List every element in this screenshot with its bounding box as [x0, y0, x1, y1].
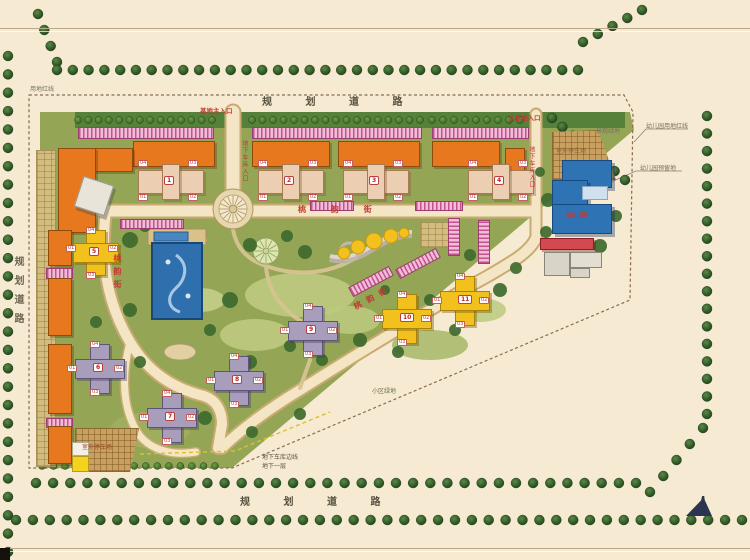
- swimming-pool: [148, 229, 206, 319]
- parking-row: [432, 127, 529, 139]
- garage-entrance-main-label: 地下车库入口: [240, 140, 249, 182]
- parking-row: [78, 127, 214, 139]
- garage-entrance-secondary-label: 地下车库入口: [527, 146, 536, 188]
- tower-building: 0401 0203 8: [214, 356, 262, 404]
- tower-building: 0401 0203 5: [73, 230, 117, 274]
- street-name-main: 桃 韵 街: [298, 204, 383, 215]
- red-slab-building: [540, 238, 594, 250]
- kindergarten-redline-label: 幼儿园用地红线: [646, 121, 688, 130]
- kindergarten-reserved-label: 幼儿园预留地: [640, 163, 676, 172]
- kindergarten-building: 幼儿园: [552, 158, 616, 236]
- gray-block-building: [570, 252, 602, 268]
- bottom-road-label: 规 划 道 路: [240, 493, 395, 508]
- outdoor-parking-sw-label: 室外停车场: [82, 442, 112, 451]
- utility-building: [72, 456, 89, 472]
- left-road-label: 规划道路: [10, 256, 25, 332]
- housing-cluster: 0403 0102 3: [343, 162, 407, 204]
- site-redline-label: 用地红线: [30, 84, 54, 93]
- main-entrance-label: 基地主入口: [200, 105, 233, 115]
- housing-cluster: 0403 0102 4: [468, 162, 532, 204]
- tower-building: 0401 0203 6: [75, 344, 123, 392]
- west-slab: [48, 426, 72, 464]
- kindergarten-label: 幼儿园: [566, 210, 587, 220]
- bottom-frame-line: [0, 548, 750, 552]
- tower-building: 0401 0203 10: [382, 294, 430, 342]
- tower-building: 0401 0203 11: [440, 276, 488, 324]
- community-green-label: 小区绿地: [372, 386, 396, 395]
- gray-block-building: [544, 252, 570, 276]
- west-slab: [48, 278, 72, 336]
- parking-row: [478, 220, 490, 264]
- top-road-label: 规 划 道 路: [262, 93, 417, 108]
- black-corner-mark: [0, 548, 10, 560]
- landscape-green-label: 景观绿地: [596, 126, 620, 135]
- housing-cluster: 0403 0102 1: [138, 162, 202, 204]
- parking-row: [120, 219, 184, 229]
- garage-edge-label: 地下车库边线 地下一层: [262, 453, 298, 471]
- parking-row: [448, 218, 460, 256]
- tower-building: 0401 0203 7: [147, 393, 195, 441]
- housing-cluster: 0403 0102 2: [258, 162, 322, 204]
- garden-rosette: [253, 238, 279, 264]
- gray-block-building: [570, 268, 590, 278]
- site-plan-map: 幼儿园 0403 0102 1 0403 0102 2 0403 0102 3 …: [0, 0, 750, 560]
- secondary-entrance-label: 次基地入口: [508, 112, 541, 122]
- roundabout-plaza: [213, 189, 253, 229]
- top-frame-line: [0, 28, 750, 32]
- parking-row: [415, 201, 463, 211]
- parking-row: [252, 127, 422, 139]
- outdoor-parking-ne-label: 室外停车场: [556, 146, 586, 155]
- street-name-west: 桃韵街: [112, 254, 123, 293]
- west-slab: [48, 344, 72, 414]
- tower-building: 0401 0203 9: [288, 306, 336, 354]
